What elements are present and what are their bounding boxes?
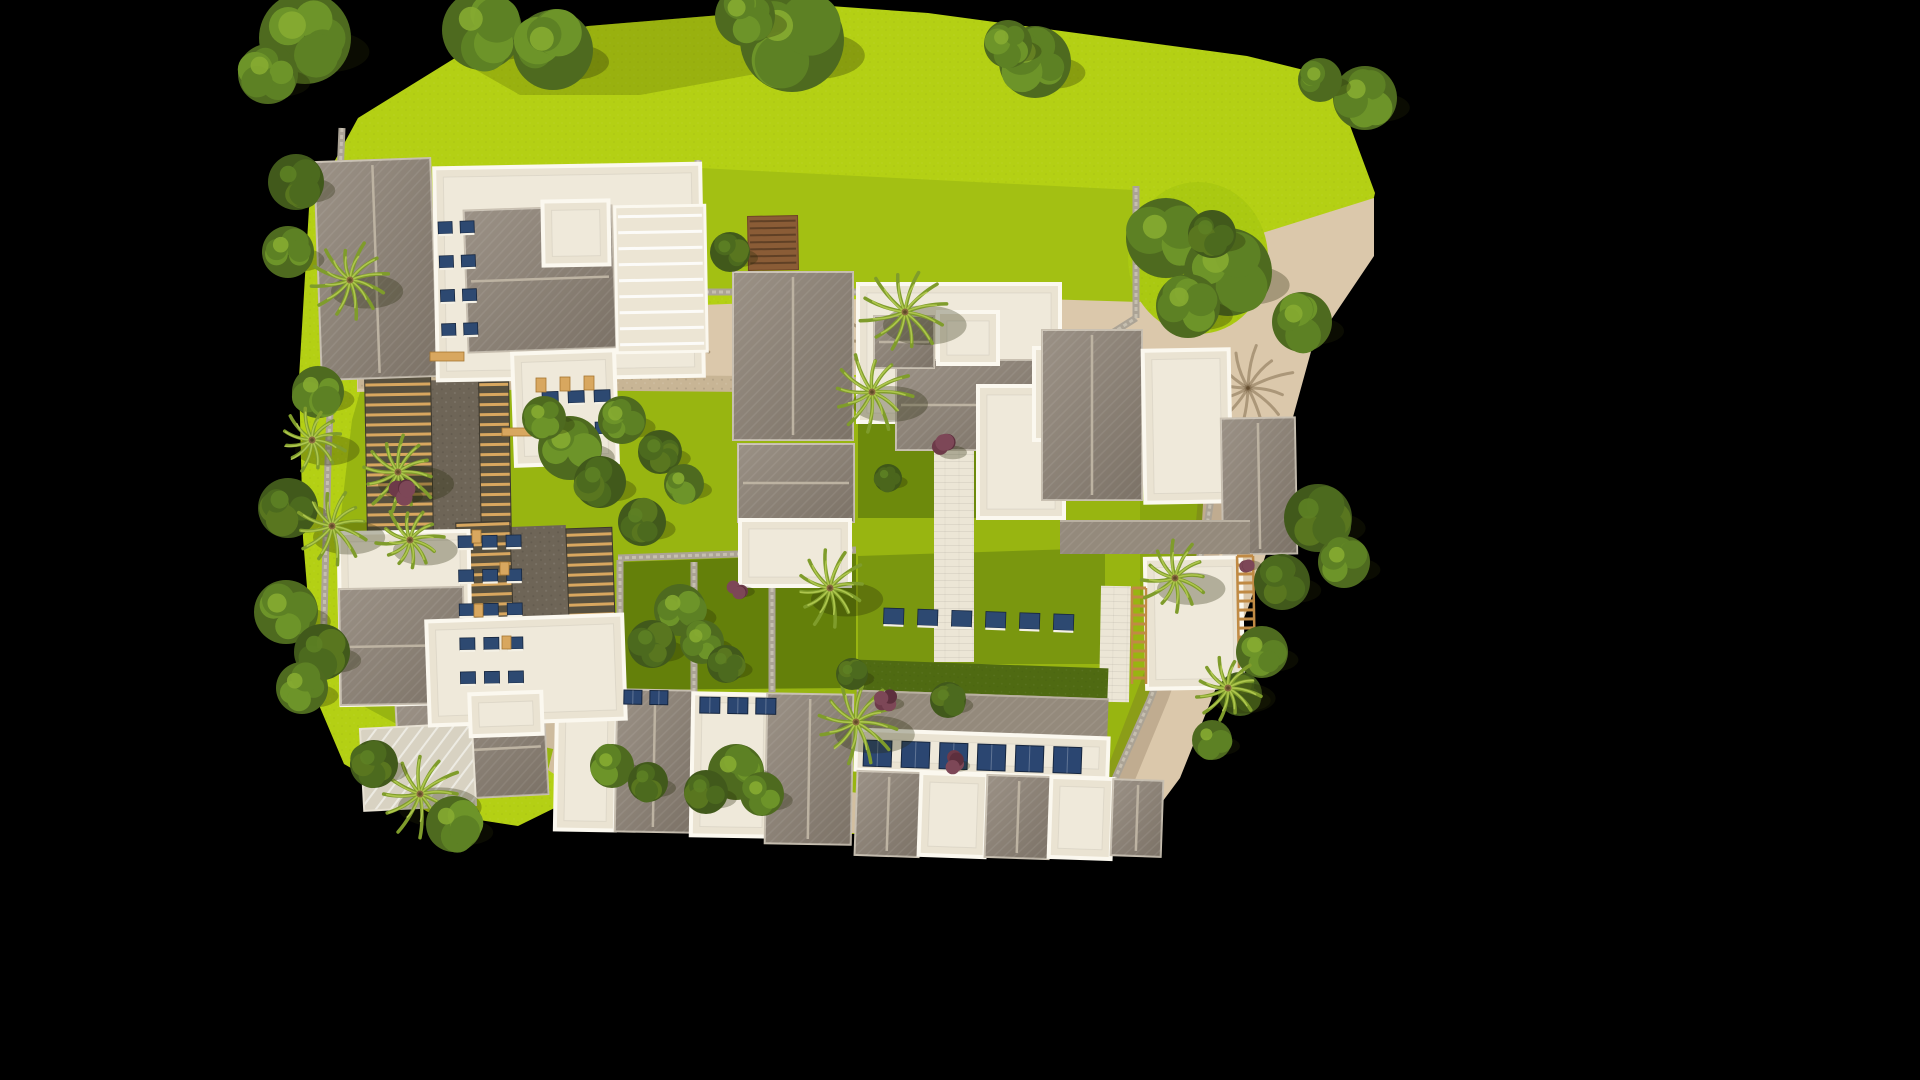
flat-roof-inset xyxy=(552,210,601,257)
palm-crown-center xyxy=(330,524,334,528)
tree-highlight xyxy=(251,57,269,75)
window xyxy=(951,610,972,627)
pergola-beam xyxy=(619,263,703,264)
shrub-purple xyxy=(732,586,745,599)
window xyxy=(484,671,499,683)
window-sill xyxy=(485,683,500,685)
tree-highlight xyxy=(278,11,306,39)
tree-highlight xyxy=(1298,498,1318,518)
wood-shutter xyxy=(430,352,464,361)
wood-louver-slat xyxy=(750,235,796,236)
pergola-beam xyxy=(618,215,702,216)
tree-highlight xyxy=(360,750,374,764)
tree-foliage-clump xyxy=(450,815,480,845)
solar-array xyxy=(700,697,776,714)
tree-highlight xyxy=(749,781,762,794)
tree-highlight xyxy=(1143,215,1167,239)
pergola-beam xyxy=(618,247,702,248)
wood-louver-slat xyxy=(750,228,796,229)
window xyxy=(459,604,474,616)
window xyxy=(438,222,452,234)
window xyxy=(507,603,522,615)
tree-highlight xyxy=(1329,547,1345,563)
tree-highlight xyxy=(718,240,730,252)
window xyxy=(460,672,475,684)
tree-foliage-clump xyxy=(1198,737,1221,760)
tree-highlight xyxy=(459,7,483,31)
tree-foliage-clump xyxy=(635,779,658,802)
tree-highlight xyxy=(585,467,601,483)
flat-roof-inset xyxy=(479,701,534,727)
tree-highlight xyxy=(672,472,684,484)
tree-highlight xyxy=(720,756,737,773)
tree-highlight xyxy=(628,508,642,522)
window xyxy=(461,255,475,267)
palm-crown-center xyxy=(903,310,907,314)
window xyxy=(594,390,610,403)
palm-crown-center xyxy=(854,720,858,724)
tree-highlight xyxy=(608,406,622,420)
wood-louver-slat xyxy=(750,242,796,243)
tree-highlight xyxy=(715,653,726,664)
tree-highlight xyxy=(880,470,888,478)
tree-highlight xyxy=(1285,305,1303,323)
window xyxy=(1053,614,1074,631)
wood-shutter xyxy=(560,377,570,391)
window xyxy=(484,637,499,649)
tree-highlight xyxy=(599,753,612,766)
pergola-beam xyxy=(619,279,703,280)
shrub-purple xyxy=(946,760,960,774)
window xyxy=(883,608,904,625)
tree-highlight xyxy=(303,377,319,393)
tree-foliage-clump xyxy=(289,240,311,262)
window xyxy=(462,289,476,301)
tree-highlight xyxy=(636,770,648,782)
window xyxy=(442,323,456,335)
window xyxy=(483,569,498,581)
tree-foliage-clump xyxy=(879,476,895,492)
window-sill xyxy=(506,547,521,549)
roof-band-hatch xyxy=(1060,520,1250,554)
palm-crown-center xyxy=(828,586,832,590)
tree-highlight xyxy=(306,636,323,653)
palm-crown-center xyxy=(348,278,352,282)
flat-roof-inset xyxy=(928,782,978,848)
wood-louver-slat xyxy=(750,221,796,222)
wood-shutter xyxy=(474,604,483,617)
flat-roof-inset xyxy=(1058,786,1104,849)
pergola-lane-texture xyxy=(431,380,482,537)
site-plan-render xyxy=(0,0,1920,1080)
tree-highlight xyxy=(693,779,706,792)
palm-crown-center xyxy=(1226,686,1230,690)
tree-highlight xyxy=(1169,287,1188,306)
window-sill xyxy=(482,547,497,549)
window-sill xyxy=(483,615,498,617)
wood-shutter xyxy=(472,530,481,543)
tree-highlight xyxy=(267,593,286,612)
tree-foliage-clump xyxy=(289,180,315,206)
wood-shutter xyxy=(536,378,546,392)
site-plan-svg xyxy=(0,0,1920,1080)
tree-highlight xyxy=(938,690,949,701)
tree-foliage-clump xyxy=(1258,651,1279,672)
tree-highlight xyxy=(994,30,1008,44)
tree-highlight xyxy=(1200,728,1212,740)
palm-crown-center xyxy=(1173,576,1177,580)
tree-highlight xyxy=(438,808,455,825)
tree-highlight xyxy=(638,630,652,644)
pergola-beam xyxy=(619,295,703,296)
tree-highlight xyxy=(273,237,289,253)
wood-shutter xyxy=(584,376,594,390)
window xyxy=(482,535,497,547)
window xyxy=(985,612,1006,629)
window-sill xyxy=(459,616,474,618)
palm-crown-center xyxy=(310,438,314,442)
tree-highlight xyxy=(647,439,660,452)
tree-highlight xyxy=(271,491,289,509)
pergola-beam xyxy=(620,311,704,312)
shrub-purple xyxy=(874,691,888,705)
shrub-purple xyxy=(399,481,416,498)
palm-crown-center xyxy=(418,792,422,796)
window xyxy=(464,323,478,335)
tree-highlight xyxy=(689,629,702,642)
window-sill xyxy=(509,683,524,685)
palm-crown-center xyxy=(408,538,412,542)
palm-crown-center xyxy=(396,470,400,474)
wood-louver-slat xyxy=(750,249,796,250)
window xyxy=(1019,613,1040,630)
tree-highlight xyxy=(1307,67,1320,80)
shrub-purple xyxy=(938,434,955,451)
tree-highlight xyxy=(531,405,544,418)
wood-shutter xyxy=(502,636,511,649)
tree-foliage-clump xyxy=(531,417,552,438)
tree-foliage-clump xyxy=(726,655,742,671)
window xyxy=(439,255,453,267)
flat-roof-inset xyxy=(1152,358,1222,493)
window xyxy=(483,603,498,615)
tree-foliage-clump xyxy=(706,786,725,805)
pergola-beam xyxy=(620,327,704,328)
window xyxy=(508,671,523,683)
tree-foliage-clump xyxy=(1204,233,1227,256)
window xyxy=(458,536,473,548)
window xyxy=(917,609,938,626)
tree-highlight xyxy=(530,27,554,51)
palm-crown-center xyxy=(870,390,874,394)
courtyard-c xyxy=(858,548,1105,664)
tree-foliage-clump xyxy=(733,16,761,44)
tree-foliage-clump xyxy=(677,591,700,614)
pergola-beam xyxy=(618,231,702,232)
window-sill xyxy=(461,684,476,686)
window-sill xyxy=(484,649,499,651)
window-sill xyxy=(459,582,474,584)
window xyxy=(440,289,454,301)
window xyxy=(568,391,584,404)
tree-foliage-clump xyxy=(1184,283,1217,316)
tree-highlight xyxy=(1198,220,1212,234)
shrub-purple xyxy=(1243,560,1255,572)
tree-highlight xyxy=(287,673,303,689)
window xyxy=(460,638,475,650)
tree-foliage-clump xyxy=(275,613,301,639)
pergola-slat-band xyxy=(479,382,512,537)
window-sill xyxy=(458,548,473,550)
window xyxy=(460,221,474,233)
wood-shutter xyxy=(500,562,509,575)
tree-foliage-clump xyxy=(294,33,338,77)
window-sill xyxy=(483,581,498,583)
window xyxy=(506,535,521,547)
tree-highlight xyxy=(1266,566,1283,583)
tree-highlight xyxy=(280,166,297,183)
pergola-beam xyxy=(620,343,704,344)
wood-louver-slat xyxy=(750,263,796,264)
tree-highlight xyxy=(665,595,681,611)
window-sill xyxy=(507,581,522,583)
window-sill xyxy=(507,615,522,617)
window xyxy=(459,570,474,582)
window-sill xyxy=(460,650,475,652)
tree-foliage-clump xyxy=(637,521,657,541)
tree-highlight xyxy=(843,665,853,675)
tree-foliage-clump xyxy=(270,61,294,85)
tree-highlight xyxy=(1247,637,1263,653)
